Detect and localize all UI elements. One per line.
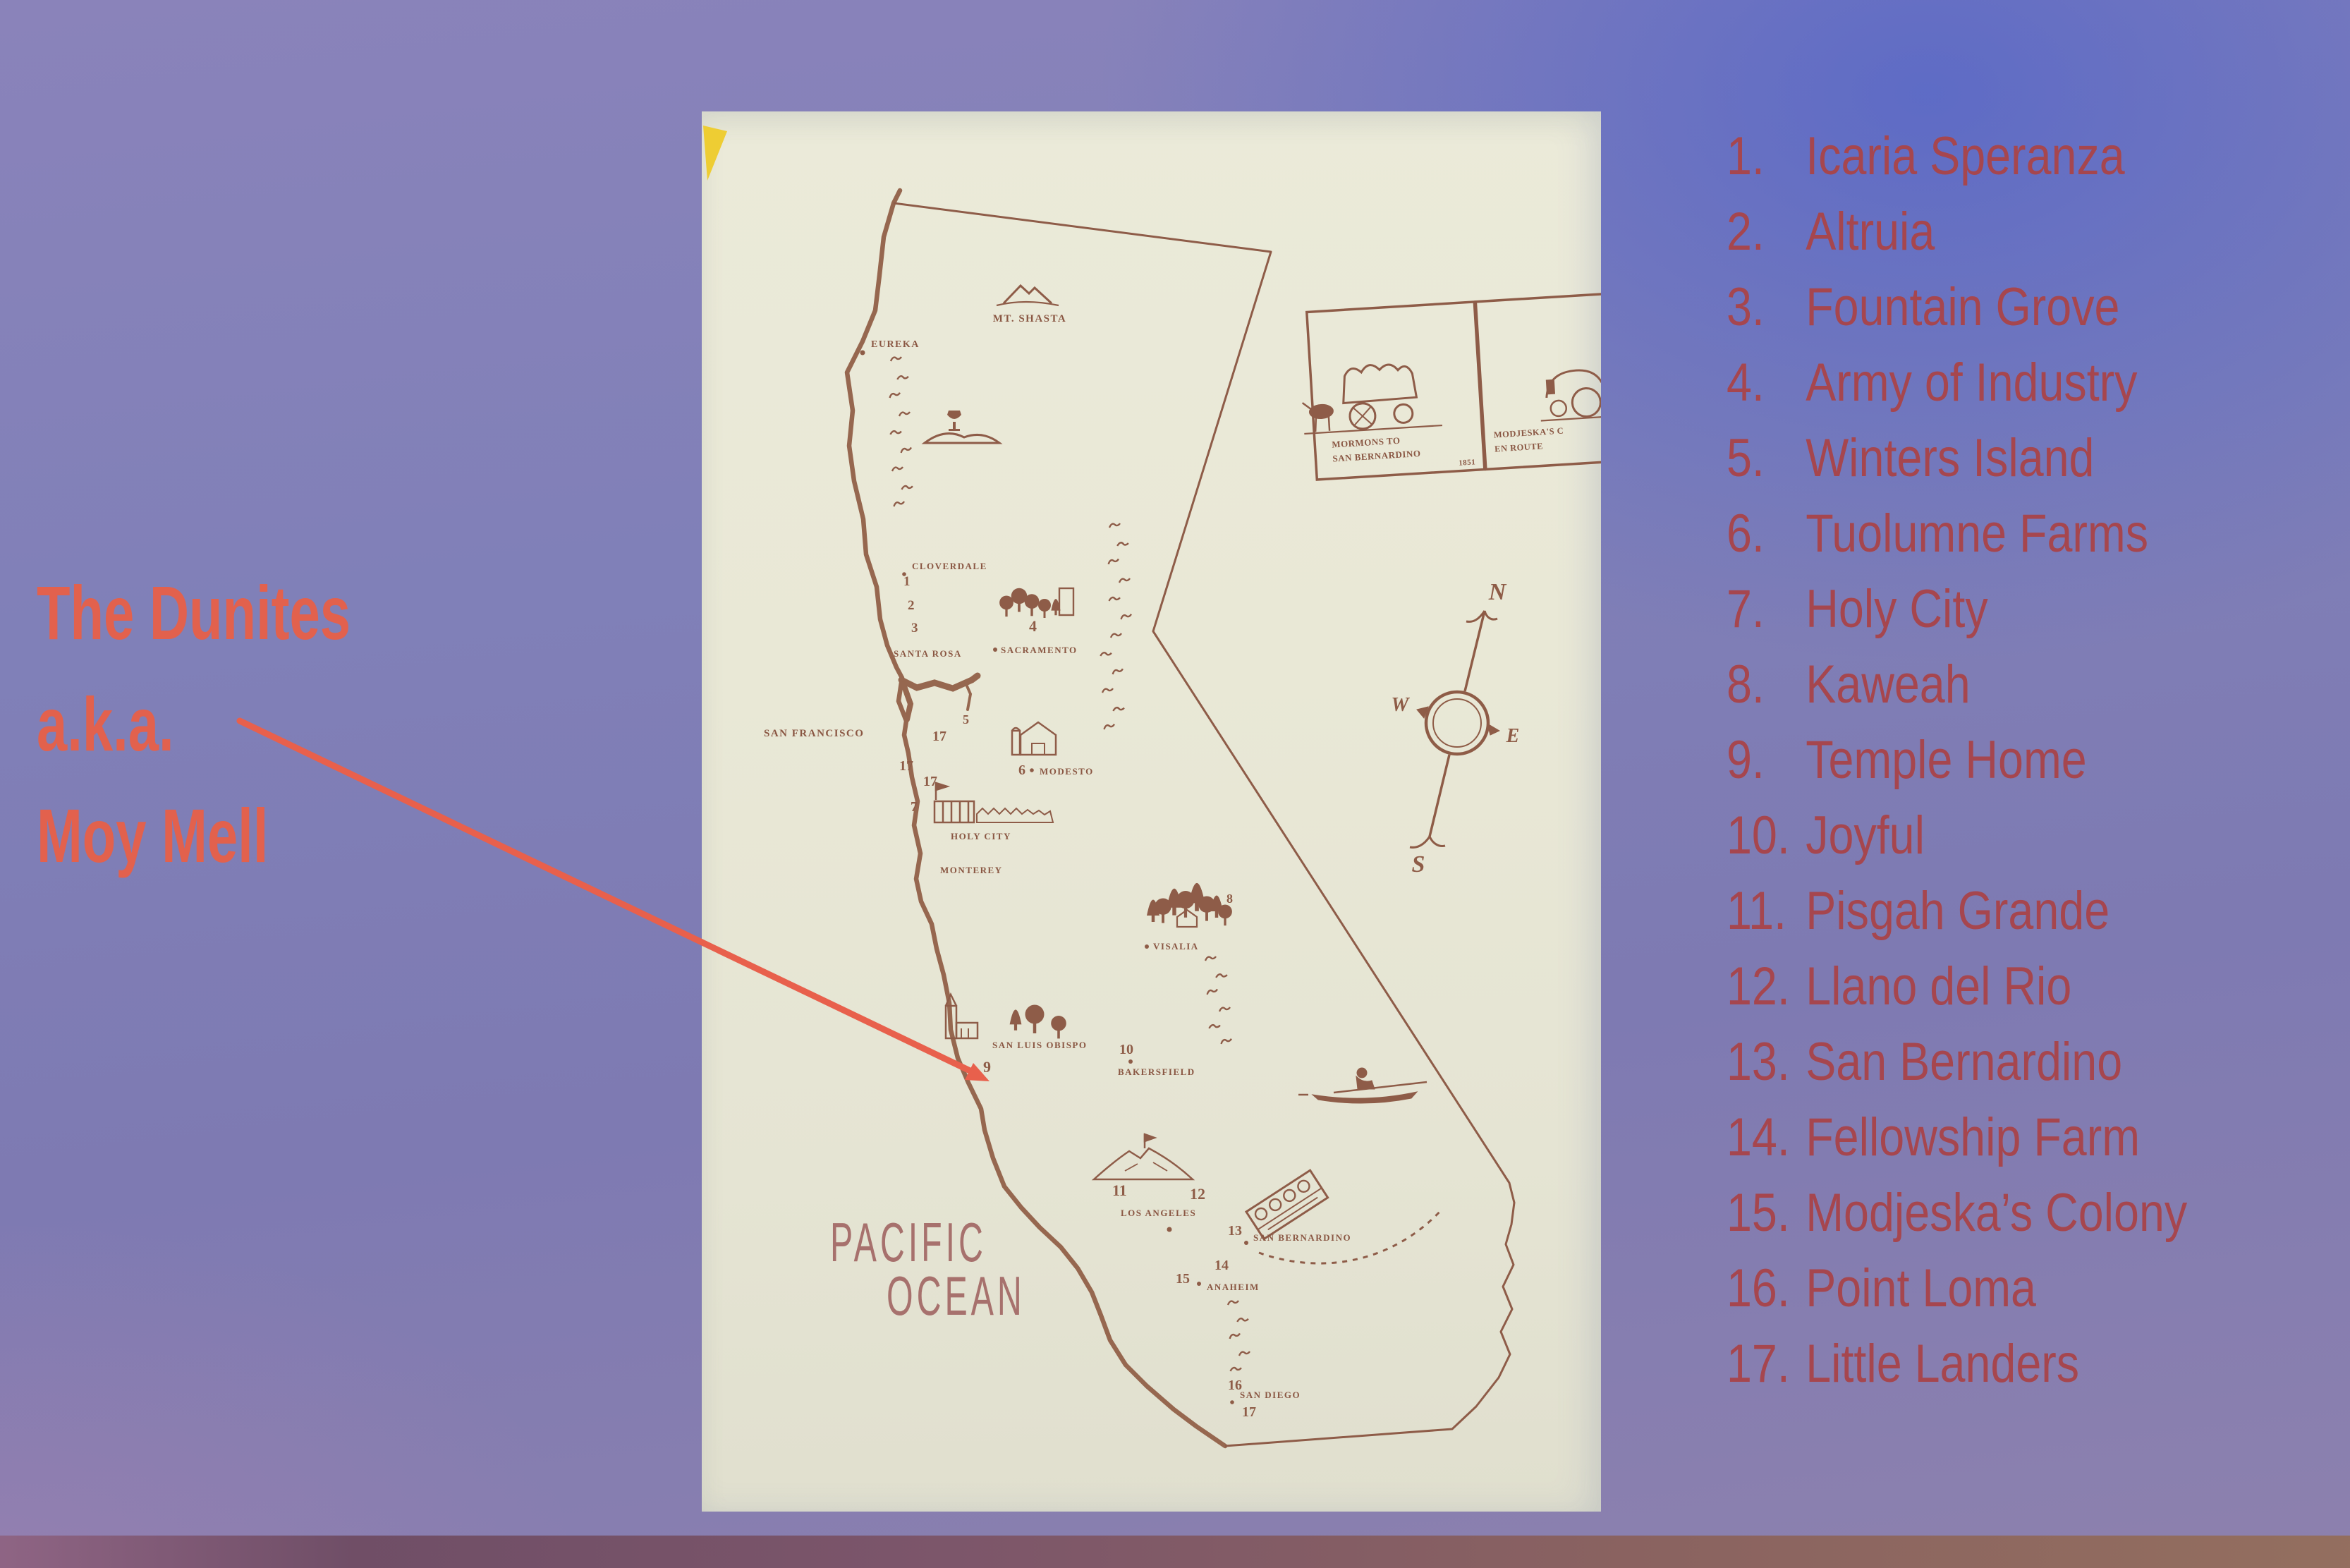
colony-list-item: 15.Modjeska’s Colony (1727, 1175, 2268, 1251)
colony-number: 2. (1727, 194, 1806, 269)
san-luis-obispo-trees (1010, 1005, 1066, 1039)
colony-name: Altruia (1806, 194, 1935, 269)
map-marker-12: 12 (1190, 1185, 1205, 1203)
map-label-ocean: OCEAN (887, 1265, 1025, 1327)
map-marker-17-b: 17 (899, 758, 913, 774)
colony-number: 6. (1727, 496, 1806, 571)
yellow-corner-mark (703, 126, 727, 181)
colony-name: Point Loma (1806, 1251, 2036, 1326)
map-label-holy-city: HOLY CITY (951, 831, 1011, 841)
map-label-pacific: PACIFIC (830, 1211, 987, 1273)
map-marker-17-d: 17 (1242, 1404, 1256, 1420)
map-marker-11: 11 (1112, 1181, 1127, 1199)
colony-list-item: 3.Fountain Grove (1727, 269, 2268, 345)
inset-caption-mormons-line2: SAN BERNARDINO (1332, 448, 1421, 464)
inset-caption-modjeska-line2: EN ROUTE (1494, 441, 1544, 454)
colony-name: Kaweah (1806, 647, 1970, 722)
colony-list-item: 5.Winters Island (1727, 420, 2268, 496)
los-angeles-dot (1167, 1227, 1172, 1232)
map-label-san-diego: SAN DIEGO (1240, 1390, 1301, 1400)
colony-list-item: 4.Army of Industry (1727, 345, 2268, 420)
slide-photo: MT. SHASTA EUREKA (0, 0, 2350, 1568)
sacramento-grove-icon (999, 588, 1073, 618)
visalia-dot (1145, 944, 1149, 949)
coast-range-chevrons (889, 357, 913, 506)
bakersfield-dot (1128, 1059, 1133, 1064)
sierra-nevada-chevrons (1100, 523, 1131, 729)
map-label-san-bernardino: SAN BERNARDINO (1253, 1232, 1351, 1243)
colony-list-item: 10.Joyful (1727, 798, 2268, 873)
map-marker-8: 8 (1226, 892, 1233, 906)
map-label-bakersfield: BAKERSFIELD (1118, 1066, 1195, 1077)
rowboat-icon (1298, 1068, 1427, 1103)
state-border (894, 203, 1514, 1446)
map-marker-2: 2 (908, 598, 915, 613)
map-marker-7: 7 (911, 799, 918, 815)
map-marker-14: 14 (1214, 1258, 1229, 1273)
covered-wagon-icon (1301, 361, 1442, 434)
colony-name: Fellowship Farm (1806, 1100, 2140, 1175)
colony-name: Pisgah Grande (1806, 873, 2109, 949)
colony-name: Winters Island (1806, 420, 2094, 496)
colony-name: Llano del Rio (1806, 949, 2071, 1024)
colony-list-item: 17.Little Landers (1727, 1326, 2268, 1402)
colony-list-item: 9.Temple Home (1727, 722, 2268, 798)
colony-number: 7. (1727, 571, 1806, 647)
colony-number: 14. (1727, 1100, 1806, 1175)
anaheim-dot (1197, 1282, 1201, 1286)
map-marker-10: 10 (1119, 1042, 1133, 1057)
tehachapi-chevrons (1205, 956, 1231, 1044)
colony-name: Joyful (1806, 798, 1925, 873)
map-label-mt-shasta: MT. SHASTA (993, 313, 1066, 324)
compass-s-label: S (1412, 851, 1425, 877)
photo-bottom-edge (0, 1536, 2350, 1568)
map-label-monterey: MONTEREY (940, 865, 1003, 875)
holy-city-building-icon (934, 783, 1053, 822)
san-diego-chevrons (1228, 1301, 1250, 1372)
colony-name: Icaria Speranza (1806, 118, 2124, 194)
map-marker-3: 3 (911, 621, 918, 636)
colony-number: 12. (1727, 949, 1806, 1024)
goblet-icon (925, 411, 999, 443)
colony-name: San Bernardino (1806, 1024, 2122, 1100)
colony-number: 16. (1727, 1251, 1806, 1326)
colony-list: 1.Icaria Speranza 2.Altruia 3.Fountain G… (1727, 118, 2268, 1402)
map-marker-4: 4 (1029, 617, 1037, 635)
mt-shasta-icon (997, 286, 1059, 305)
colony-list-item: 1.Icaria Speranza (1727, 118, 2268, 194)
colony-number: 10. (1727, 798, 1806, 873)
eureka-dot (860, 351, 865, 355)
colony-number: 4. (1727, 345, 1806, 420)
colony-name: Tuolumne Farms (1806, 496, 2148, 571)
map-label-modesto: MODESTO (1040, 766, 1094, 777)
map-label-san-luis-obispo: SAN LUIS OBISPO (992, 1040, 1087, 1050)
colony-name: Temple Home (1806, 722, 2087, 798)
compass-rose-icon: N W E S (1392, 579, 1520, 877)
annotation-dunites: The Dunites a.k.a. Moy Mell (37, 557, 473, 892)
map-label-visalia: VISALIA (1153, 941, 1199, 952)
colony-number: 13. (1727, 1024, 1806, 1100)
colony-list-item: 13.San Bernardino (1727, 1024, 2268, 1100)
colony-name: Holy City (1806, 571, 1987, 647)
colony-number: 9. (1727, 722, 1806, 798)
inset-caption-modjeska-line1: MODJESKA'S C (1493, 426, 1564, 440)
pisgah-mountain-icon (1094, 1134, 1193, 1179)
map-label-anaheim: ANAHEIM (1207, 1282, 1260, 1292)
colony-list-item: 2.Altruia (1727, 194, 2268, 269)
colony-list-item: 12.Llano del Rio (1727, 949, 2268, 1024)
inset-panel-left: MORMONS TO SAN BERNARDINO 1851 (1297, 302, 1485, 480)
map-label-san-francisco: SAN FRANCISCO (764, 728, 864, 739)
map-marker-9: 9 (983, 1058, 991, 1076)
map-marker-15: 15 (1176, 1271, 1190, 1287)
inset-caption-mormons-line1: MORMONS TO (1332, 435, 1401, 450)
map-marker-1: 1 (903, 574, 911, 589)
colony-number: 17. (1727, 1326, 1806, 1402)
colony-number: 15. (1727, 1175, 1806, 1251)
compass-n-label: N (1488, 579, 1507, 605)
colony-number: 11. (1727, 873, 1806, 949)
colony-name: Little Landers (1806, 1326, 2079, 1402)
colony-list-item: 7.Holy City (1727, 571, 2268, 647)
colony-list-item: 11.Pisgah Grande (1727, 873, 2268, 949)
san-diego-dot (1230, 1400, 1234, 1404)
map-label-los-angeles: LOS ANGELES (1121, 1208, 1196, 1218)
compass-w-label: W (1392, 694, 1411, 716)
inset-caption-year: 1851 (1459, 458, 1476, 467)
modesto-dot (1030, 768, 1034, 772)
san-bernardino-dot (1244, 1241, 1248, 1245)
colony-list-item: 16.Point Loma (1727, 1251, 2268, 1326)
sacramento-dot (993, 648, 997, 652)
colony-number: 8. (1727, 647, 1806, 722)
annotation-line-2: a.k.a. (37, 669, 351, 780)
map-label-cloverdale: CLOVERDALE (912, 561, 987, 571)
colony-name: Army of Industry (1806, 345, 2137, 420)
colony-name: Fountain Grove (1806, 269, 2119, 345)
colony-number: 1. (1727, 118, 1806, 194)
map-label-santa-rosa: SANTA ROSA (894, 648, 962, 659)
inset-panels: MORMONS TO SAN BERNARDINO 1851 MODJESKA'… (1297, 293, 1601, 480)
colony-number: 3. (1727, 269, 1806, 345)
annotation-line-3: Moy Mell (37, 780, 351, 892)
map-marker-13: 13 (1228, 1223, 1242, 1239)
llano-building-icon (1246, 1170, 1328, 1239)
colony-list-item: 14.Fellowship Farm (1727, 1100, 2268, 1175)
colony-name: Modjeska’s Colony (1806, 1175, 2187, 1251)
map-label-sacramento: SACRAMENTO (1001, 645, 1078, 655)
stagecoach-icon (1538, 369, 1601, 421)
map-label-eureka: EUREKA (871, 339, 920, 350)
compass-e-label: E (1506, 725, 1520, 747)
inset-panel-right: MODJESKA'S C EN ROUTE (1475, 293, 1601, 469)
map-marker-17-a: 17 (932, 729, 946, 744)
annotation-line-1: The Dunites (37, 557, 351, 669)
map-marker-5: 5 (963, 712, 969, 727)
colony-number: 5. (1727, 420, 1806, 496)
modesto-barn-icon (1012, 722, 1056, 755)
colony-list-item: 8.Kaweah (1727, 647, 2268, 722)
map-page: MT. SHASTA EUREKA (702, 111, 1601, 1512)
map-marker-6: 6 (1018, 762, 1025, 778)
california-map: MT. SHASTA EUREKA (702, 111, 1601, 1512)
colony-list-item: 6.Tuolumne Farms (1727, 496, 2268, 571)
visalia-grove-icon (1147, 883, 1232, 927)
